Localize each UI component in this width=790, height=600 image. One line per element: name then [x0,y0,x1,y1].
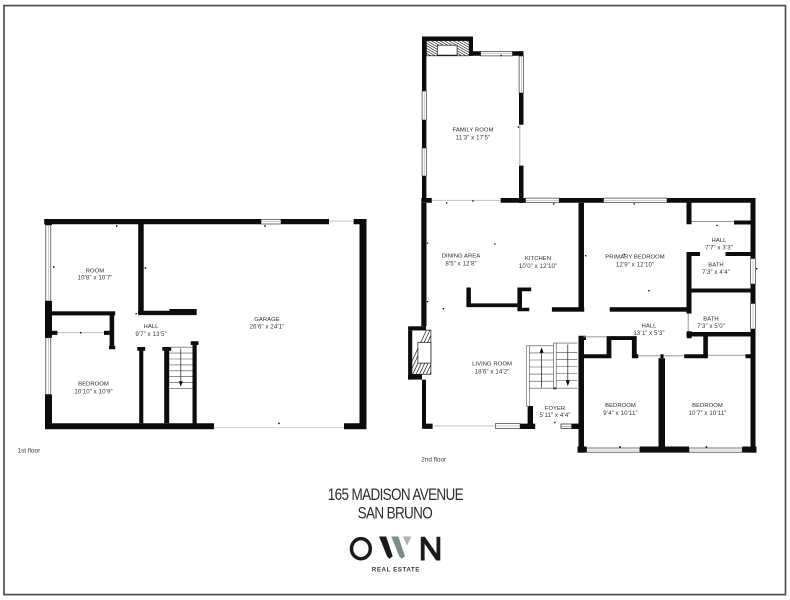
svg-text:9’4” x 10’11”: 9’4” x 10’11” [603,410,637,417]
svg-text:GARAGE: GARAGE [254,317,280,323]
svg-text:2nd floor: 2nd floor [421,457,447,464]
svg-text:BEDROOM: BEDROOM [692,403,723,409]
svg-text:BEDROOM: BEDROOM [78,382,109,388]
svg-text:KITCHEN: KITCHEN [525,256,551,262]
svg-text:LIVING ROOM: LIVING ROOM [472,362,512,368]
svg-text:FAMILY ROOM: FAMILY ROOM [453,128,494,134]
svg-text:5’11” x 4’4”: 5’11” x 4’4” [540,412,571,419]
svg-text:1st floor: 1st floor [18,448,42,455]
svg-text:10’7” x 10’11”: 10’7” x 10’11” [689,410,727,417]
svg-text:HALL: HALL [642,324,658,330]
svg-text:26’6” x 24’1”: 26’6” x 24’1” [250,324,285,331]
svg-text:13’1” x 5’3”: 13’1” x 5’3” [633,330,664,337]
svg-text:BATH: BATH [703,317,718,323]
svg-text:DINING AREA: DINING AREA [442,254,481,260]
svg-text:7’3” x 4’4”: 7’3” x 4’4” [702,269,730,276]
svg-text:ROOM: ROOM [86,268,105,274]
svg-text:PRIMARY BEDROOM: PRIMARY BEDROOM [605,255,664,261]
svg-text:18’6” x 14’2”: 18’6” x 14’2” [475,369,510,376]
svg-text:165 MADISON AVENUE: 165 MADISON AVENUE [328,486,464,505]
svg-text:9’7” x 13’5”: 9’7” x 13’5” [135,331,166,338]
svg-text:SAN BRUNO: SAN BRUNO [358,504,432,523]
svg-text:11’3” x 17’5”: 11’3” x 17’5” [456,135,490,142]
svg-text:7’3” x 5’0”: 7’3” x 5’0” [697,323,725,330]
svg-text:10’0” x 12’10”: 10’0” x 12’10” [519,263,557,270]
svg-text:BEDROOM: BEDROOM [605,403,636,409]
svg-text:12’9” x 12’10”: 12’9” x 12’10” [616,262,654,269]
svg-text:10’10” x 10’9”: 10’10” x 10’9” [74,388,112,395]
svg-text:HALL: HALL [144,324,160,330]
svg-text:8’5” x 12’8”: 8’5” x 12’8” [445,261,476,268]
svg-text:7’7” x 3’3”: 7’7” x 3’3” [705,245,733,252]
svg-text:10’8” x 10’7”: 10’8” x 10’7” [78,275,113,282]
svg-text:BATH: BATH [708,263,723,269]
svg-text:REAL ESTATE: REAL ESTATE [372,567,420,574]
svg-text:HALL: HALL [712,238,728,244]
